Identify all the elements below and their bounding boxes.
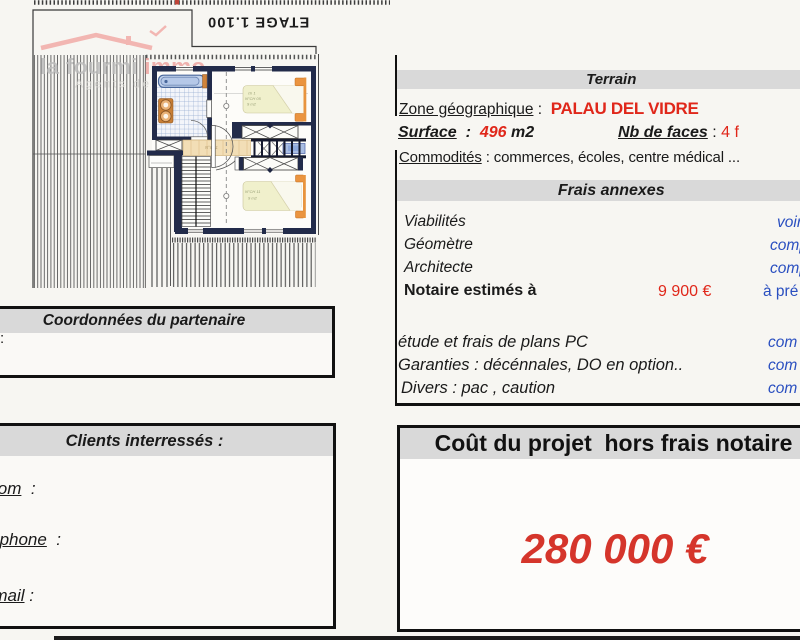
svg-text:Agents de l: Agents de l xyxy=(75,77,163,91)
svg-text:ch 1: ch 1 xyxy=(248,91,256,96)
svg-text:ETAGE 1.100: ETAGE 1.100 xyxy=(207,14,309,30)
svg-text:9 m2: 9 m2 xyxy=(248,196,258,201)
svg-text:N°CH 11: N°CH 11 xyxy=(245,189,261,194)
svg-text:N°CH 05: N°CH 05 xyxy=(245,96,262,101)
svg-text:9 m2: 9 m2 xyxy=(247,102,257,107)
